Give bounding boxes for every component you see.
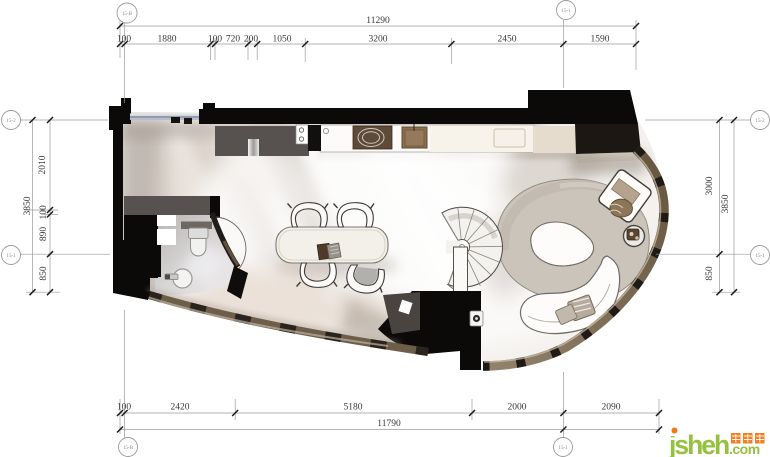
svg-text:100: 100 — [117, 403, 132, 413]
svg-text:100: 100 — [208, 35, 223, 45]
svg-text:1050: 1050 — [273, 35, 292, 45]
svg-text:2090: 2090 — [602, 403, 621, 413]
svg-text:15-B: 15-B — [122, 11, 133, 17]
svg-text:15-B: 15-B — [123, 445, 134, 451]
svg-text:720: 720 — [226, 35, 241, 45]
svg-text:15-1: 15-1 — [6, 253, 16, 259]
svg-text:15-1: 15-1 — [755, 253, 765, 259]
svg-text:3850: 3850 — [721, 194, 731, 213]
svg-text:2450: 2450 — [498, 35, 517, 45]
svg-text:3850: 3850 — [23, 196, 33, 215]
svg-text:850: 850 — [705, 266, 715, 281]
svg-text:3000: 3000 — [705, 176, 715, 195]
svg-text:1880: 1880 — [158, 35, 177, 45]
svg-text:100: 100 — [39, 205, 49, 220]
svg-text:2010: 2010 — [38, 155, 48, 174]
svg-text:3200: 3200 — [369, 35, 388, 45]
svg-text:11790: 11790 — [377, 419, 401, 429]
svg-text:1590: 1590 — [591, 35, 610, 45]
svg-text:2420: 2420 — [171, 403, 190, 413]
svg-text:100: 100 — [117, 35, 132, 45]
svg-text:11290: 11290 — [366, 16, 390, 26]
svg-text:15-2: 15-2 — [755, 118, 765, 124]
svg-text:15-1: 15-1 — [558, 445, 568, 451]
svg-text:850: 850 — [39, 266, 49, 281]
svg-text:2000: 2000 — [508, 403, 527, 413]
svg-text:200: 200 — [244, 35, 259, 45]
svg-text:5180: 5180 — [344, 403, 363, 413]
svg-text:15-1: 15-1 — [561, 8, 571, 14]
svg-text:15-2: 15-2 — [6, 118, 16, 124]
svg-text:890: 890 — [39, 227, 49, 242]
